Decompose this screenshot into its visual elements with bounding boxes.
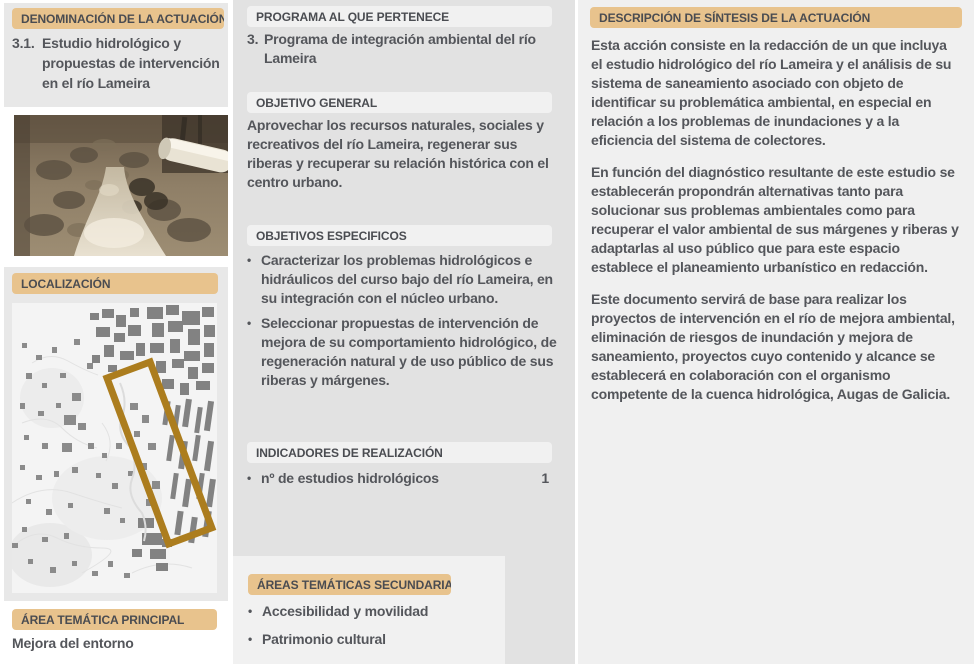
descripcion-body: Esta acción consiste en la redacción de … (591, 36, 961, 404)
bullet-dot-icon: • (247, 251, 261, 308)
denominacion-code: 3.1. (12, 33, 42, 93)
objetivo-general-header: OBJETIVO GENERAL (247, 92, 552, 113)
area-tematica-principal-header: ÁREA TEMÁTICA PRINCIPAL (12, 609, 217, 630)
area-tematica-principal-value: Mejora del entorno (12, 634, 222, 653)
river-photo-image (14, 115, 228, 256)
objetivo-especifico-text: Caracterizar los problemas hidrológicos … (261, 251, 565, 308)
bullet-dot-icon: • (248, 630, 262, 649)
descripcion-header: DESCRIPCIÓN DE SÍNTESIS DE LA ACTUACIÓN (590, 7, 962, 28)
programa-text: Programa de integración ambiental del rí… (264, 30, 555, 68)
denominacion-title: Estudio hidrológico y propuestas de inte… (42, 33, 220, 93)
localizacion-header: LOCALIZACIÓN (12, 273, 218, 294)
descripcion-paragraph: Este documento servirá de base para real… (591, 290, 961, 404)
indicador-row: •nº de estudios hidrológicos 1 (247, 469, 549, 488)
denominacion-title-row: 3.1. Estudio hidrológico y propuestas de… (12, 33, 220, 93)
objetivo-general-text: Aprovechar los recursos naturales, socia… (247, 116, 557, 192)
areas-secundarias-header: ÁREAS TEMÁTICAS SECUNDARIAS (248, 574, 451, 595)
indicador-label: nº de estudios hidrológicos (261, 469, 439, 488)
descripcion-paragraph: Esta acción consiste en la redacción de … (591, 36, 961, 150)
localizacion-panel: LOCALIZACIÓN (4, 267, 228, 601)
bullet-dot-icon: • (247, 314, 261, 390)
bullet-dot-icon: • (248, 602, 262, 621)
objetivo-especifico-text: Seleccionar propuestas de intervención d… (261, 314, 565, 390)
bullet-dot-icon: • (247, 469, 261, 488)
river-photo-graphic (14, 115, 228, 256)
descripcion-panel: DESCRIPCIÓN DE SÍNTESIS DE LA ACTUACIÓN … (578, 0, 974, 664)
programa-row: 3. Programa de integración ambiental del… (247, 30, 555, 68)
middle-panel: PROGRAMA AL QUE PERTENECE 3. Programa de… (233, 0, 575, 664)
denominacion-panel: DENOMINACIÓN DE LA ACTUACIÓN 3.1. Estudi… (4, 3, 228, 107)
indicadores-header: INDICADORES DE REALIZACIÓN (247, 442, 552, 463)
area-secundaria-text: Accesibilidad y movilidad (262, 602, 428, 621)
objetivo-especifico-item: • Seleccionar propuestas de intervención… (247, 314, 565, 390)
objetivos-especificos-header: OBJETIVOS ESPECIFICOS (247, 225, 552, 246)
descripcion-paragraph: En función del diagnóstico resultante de… (591, 163, 961, 277)
location-map-graphic (12, 303, 217, 593)
area-secundaria-item: • Accesibilidad y movilidad (248, 602, 498, 621)
programa-header: PROGRAMA AL QUE PERTENECE (247, 6, 552, 27)
area-secundaria-text: Patrimonio cultural (262, 630, 386, 649)
programa-code: 3. (247, 30, 264, 68)
objetivo-especifico-item: • Caracterizar los problemas hidrológico… (247, 251, 565, 308)
area-secundaria-item: • Patrimonio cultural (248, 630, 498, 649)
indicador-value: 1 (541, 469, 549, 488)
denominacion-header: DENOMINACIÓN DE LA ACTUACIÓN (12, 8, 224, 29)
action-sheet-page: DENOMINACIÓN DE LA ACTUACIÓN 3.1. Estudi… (0, 0, 974, 664)
location-map-image (12, 303, 217, 593)
